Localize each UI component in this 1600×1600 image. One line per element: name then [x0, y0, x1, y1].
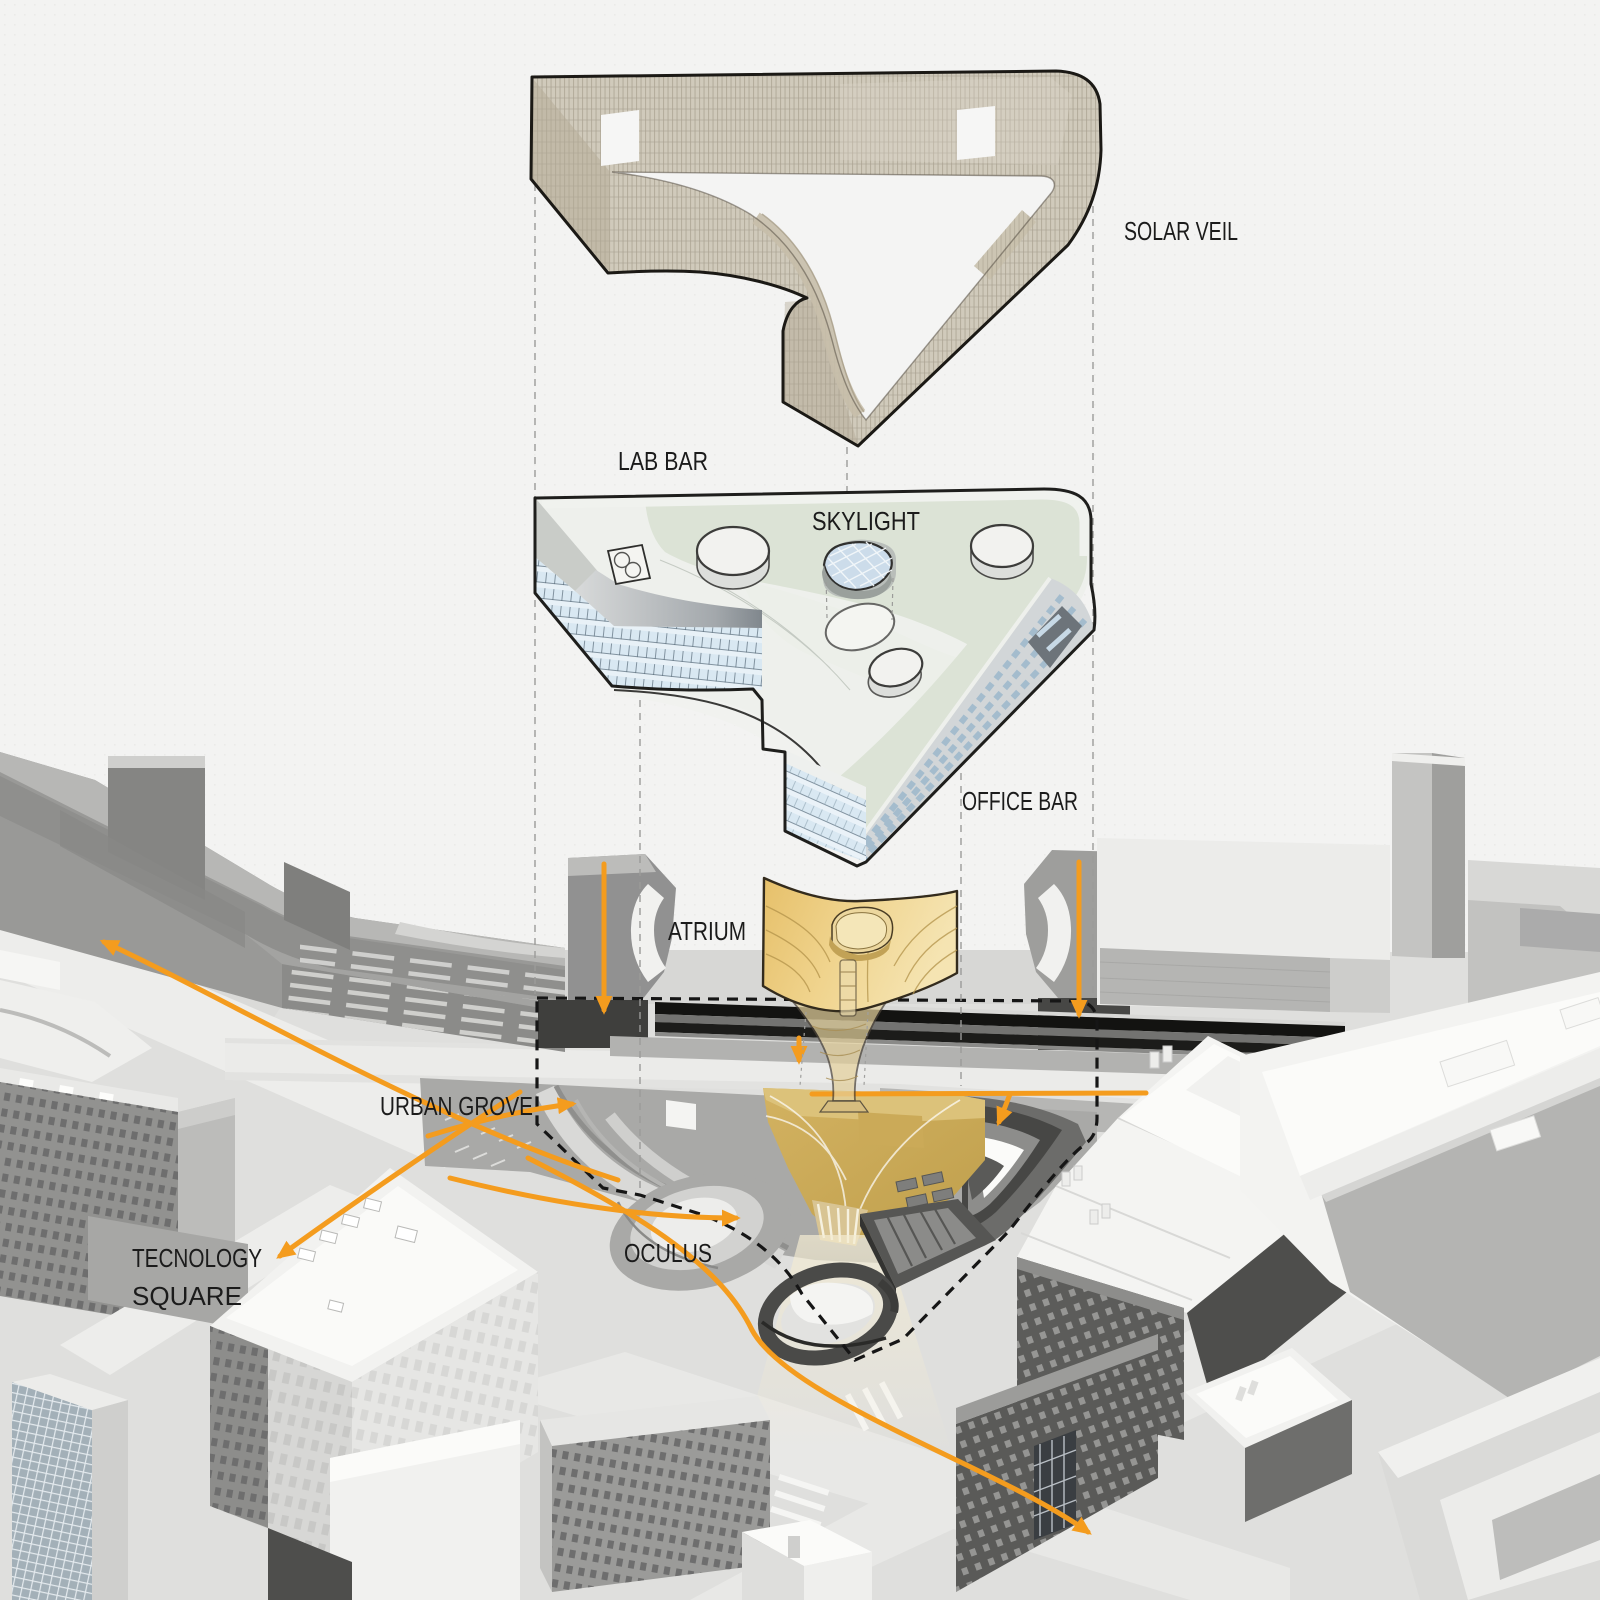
svg-text:OCULUS: OCULUS	[624, 1238, 712, 1268]
svg-text:TECNOLOGY: TECNOLOGY	[132, 1243, 262, 1273]
svg-text:ATRIUM: ATRIUM	[668, 916, 746, 946]
svg-text:SQUARE: SQUARE	[132, 1281, 242, 1311]
svg-text:LAB BAR: LAB BAR	[618, 446, 708, 476]
svg-text:SKYLIGHT: SKYLIGHT	[812, 506, 920, 536]
svg-text:URBAN GROVE: URBAN GROVE	[380, 1091, 533, 1121]
svg-text:OFFICE BAR: OFFICE BAR	[962, 786, 1078, 816]
svg-text:SOLAR VEIL: SOLAR VEIL	[1124, 216, 1238, 246]
